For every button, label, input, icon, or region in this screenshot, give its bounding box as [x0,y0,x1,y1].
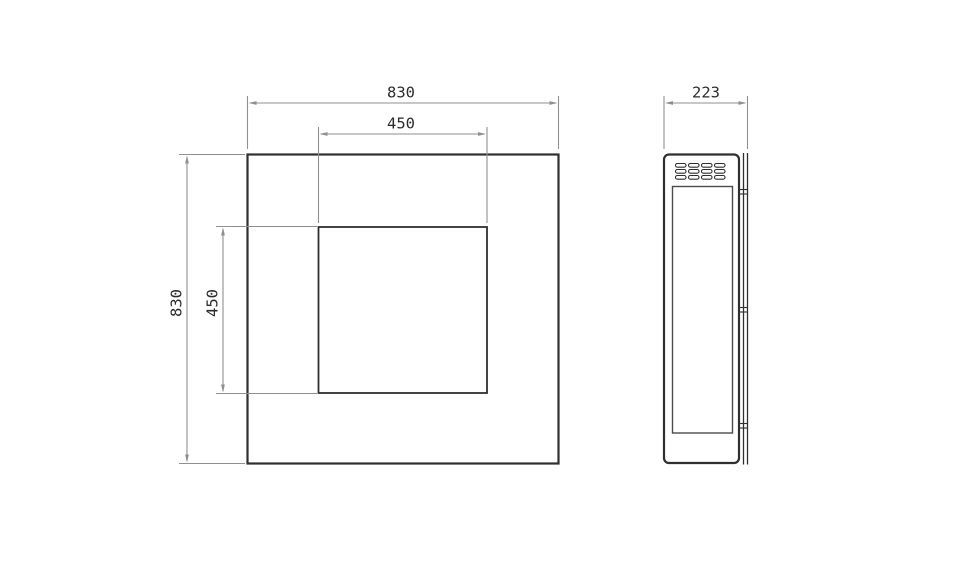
front-view: 830 450 830 [168,84,559,464]
side-door-panel [673,187,733,434]
dimension-depth: 223 [664,84,748,150]
arrowhead-right-icon [478,132,486,136]
wall-mount-plate [740,153,748,465]
dimension-label-opening-width: 450 [387,115,415,133]
side-body [664,155,739,464]
arrowhead-left-icon [320,132,328,136]
dimension-label-overall-height: 830 [168,289,186,317]
technical-drawing-page: 830 450 830 [0,0,960,581]
vent-slot [702,176,713,180]
vent-slot [715,176,726,180]
arrowhead-right-icon [550,101,558,105]
vent-slot [676,170,687,174]
technical-drawing-canvas: 830 450 830 [0,0,960,581]
dimension-opening-width: 450 [319,115,488,224]
arrowhead-up-icon [185,156,189,164]
dimension-label-opening-height: 450 [204,289,222,317]
vent-slot [689,176,700,180]
vent-slot [715,164,726,168]
vent-grid [676,164,726,180]
vent-slot [676,164,687,168]
dimension-label-depth: 223 [692,84,720,102]
vent-slot [689,170,700,174]
arrowhead-down-icon [185,455,189,463]
arrowhead-left-icon [249,101,257,105]
dimension-opening-height: 450 [204,227,318,394]
arrowhead-down-icon [221,385,225,393]
vent-slot [702,164,713,168]
vent-slot [702,170,713,174]
arrowhead-right-icon [739,101,747,105]
arrowhead-left-icon [665,101,673,105]
front-outer-panel [248,155,559,464]
vent-slot [715,170,726,174]
arrowhead-up-icon [221,228,225,236]
vent-slot [676,176,687,180]
dimension-label-overall-width: 830 [387,84,415,102]
front-inner-opening [319,227,488,393]
side-view: 223 [664,84,748,465]
vent-slot [689,164,700,168]
